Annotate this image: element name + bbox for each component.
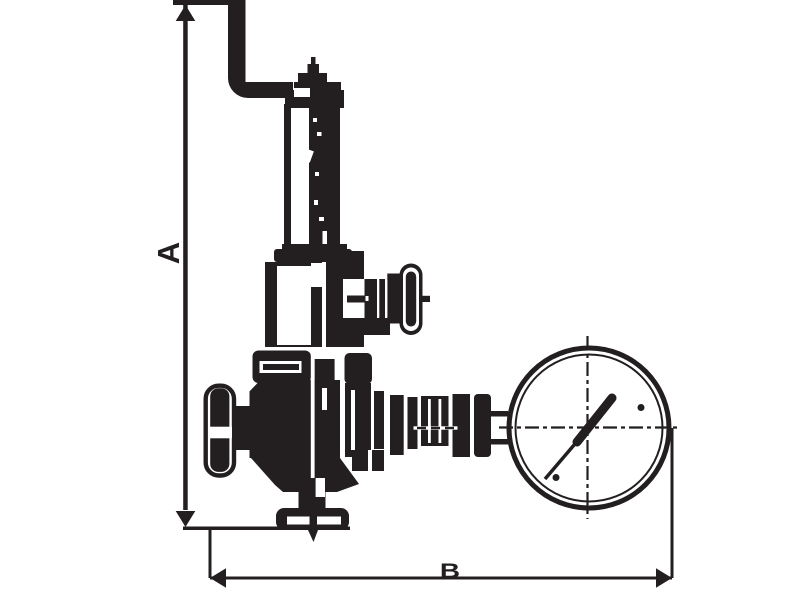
- svg-text:B: B: [440, 559, 460, 583]
- svg-text:A: A: [151, 242, 186, 264]
